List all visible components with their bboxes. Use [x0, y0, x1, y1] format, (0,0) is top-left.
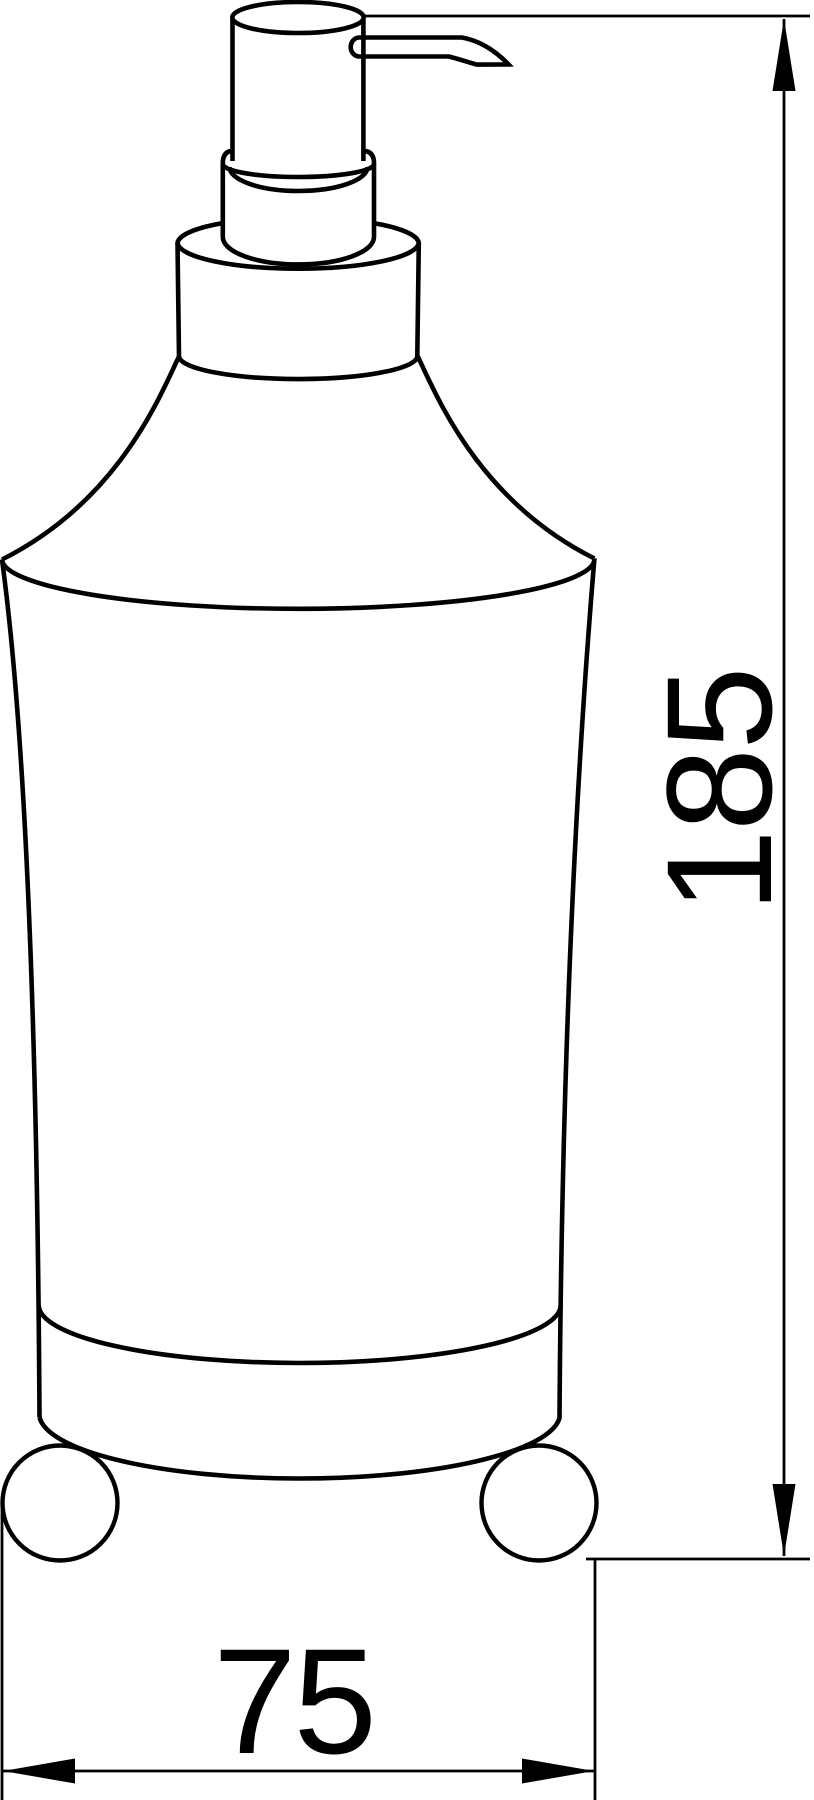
svg-text:75: 75: [213, 1617, 374, 1785]
svg-text:185: 185: [635, 668, 803, 912]
